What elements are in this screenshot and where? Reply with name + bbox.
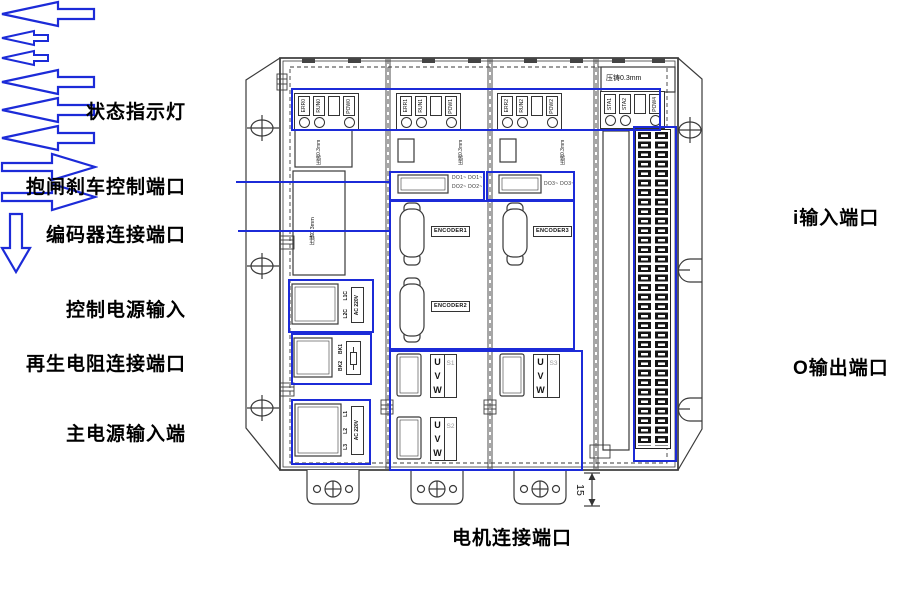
- encoder-label: 编码器连接端口: [46, 220, 186, 247]
- led-strip: RUN1: [415, 96, 427, 116]
- led-label: POW2: [550, 99, 555, 114]
- led-strip: ERR1: [400, 96, 412, 116]
- led-group-2: ERR1 RUN1 POW1: [396, 93, 461, 131]
- led-strip: ERR2: [501, 96, 513, 116]
- led-strip: STA1: [604, 94, 616, 114]
- dimension-value: 15: [574, 480, 586, 500]
- status-label: 状态指示灯: [86, 97, 186, 124]
- led-strip: ERR0: [298, 96, 310, 116]
- led-column: RUN2: [516, 96, 528, 128]
- led-column: RUN0: [313, 96, 325, 128]
- input-port-label: i输入端口: [793, 203, 879, 230]
- led-column: ERR2: [501, 96, 513, 128]
- resistor-box: [346, 341, 361, 375]
- diecast-text-m2: 压铸0.3mm: [459, 127, 464, 165]
- servo-drive-diagram: ERR0 RUN0 POW0 ERR1 RUN1 POW1 ERR2 RUN2 …: [0, 0, 900, 594]
- led-strip: STA2: [619, 94, 631, 114]
- dimension-15: [584, 473, 600, 506]
- socket-id: S2: [444, 418, 456, 460]
- uvw-w: W: [433, 386, 442, 395]
- do-label-m3: DO3~ DO3~: [544, 180, 575, 189]
- led-label: POW1: [449, 99, 454, 114]
- control-power-labels: L1C L2C AC 220V: [344, 287, 364, 323]
- uvw-v: V: [434, 372, 440, 381]
- led-column: ERR0: [298, 96, 310, 128]
- led-label: POW0: [347, 99, 352, 114]
- led-label: POW4: [653, 97, 658, 112]
- led-group-3: ERR2 RUN2 POW2: [497, 93, 562, 131]
- led-column: [328, 96, 340, 128]
- led-indicator: [517, 117, 528, 128]
- led-strip: POW1: [445, 96, 457, 116]
- led-indicator: [401, 117, 412, 128]
- led-indicator: [446, 117, 457, 128]
- uvw-letters: UVW: [431, 355, 444, 397]
- output-port-label: O输出端口: [793, 353, 889, 380]
- led-label: STA1: [608, 98, 613, 110]
- voltage-box: AC 220V: [351, 287, 364, 323]
- do-labels-m2: DO1~ DO1~ DO2~ DO2~: [452, 174, 483, 192]
- led-label: STA2: [623, 98, 628, 110]
- terminal-bk1: BK1: [339, 344, 344, 354]
- led-column: STA1: [604, 94, 616, 126]
- led-label: ERR1: [404, 99, 409, 112]
- uvw-u: U: [537, 358, 544, 367]
- led-indicator: [344, 117, 355, 128]
- uvw-terminal-s1: UVW S1: [430, 354, 457, 398]
- led-column: [531, 96, 543, 128]
- uvw-v: V: [537, 372, 543, 381]
- uvw-letters: UVW: [534, 355, 547, 397]
- socket-id: S1: [444, 355, 456, 397]
- uvw-u: U: [434, 358, 441, 367]
- regen-resistor-labels: BK1 BK2: [339, 341, 361, 375]
- uvw-v: V: [434, 435, 440, 444]
- voltage-label: AC 220V: [355, 420, 360, 440]
- led-indicator: [650, 115, 661, 126]
- encoder1-label: ENCODER1: [431, 226, 470, 237]
- led-indicator: [314, 117, 325, 128]
- uvw-u: U: [434, 421, 441, 430]
- io-terminal-strip: [635, 129, 671, 449]
- led-indicator: [416, 117, 427, 128]
- terminal-l2c: L2C: [344, 309, 349, 318]
- led-column: POW1: [445, 96, 457, 128]
- led-group-4: STA1 STA2 POW4: [600, 91, 665, 129]
- led-column: POW2: [546, 96, 558, 128]
- io-terminal-column-right: [655, 132, 668, 446]
- led-label: RUN0: [317, 99, 322, 113]
- uvw-letters: UVW: [431, 418, 444, 460]
- control-power-label: 控制电源输入: [66, 295, 186, 322]
- led-strip: RUN2: [516, 96, 528, 116]
- led-column: [634, 94, 646, 126]
- encoder2-label: ENCODER2: [431, 301, 470, 312]
- led-strip: POW2: [546, 96, 558, 116]
- uvw-terminal-s3: UVW S3: [533, 354, 560, 398]
- led-label: RUN1: [419, 99, 424, 113]
- diecast-text-m3: 压铸0.3mm: [561, 127, 566, 165]
- led-column: [430, 96, 442, 128]
- led-indicator: [605, 115, 616, 126]
- led-strip: POW0: [343, 96, 355, 116]
- brake-label: 抱闸刹车控制端口: [26, 172, 186, 199]
- led-group-1: ERR0 RUN0 POW0: [294, 93, 359, 131]
- terminal-names: L1 L2 L3: [344, 406, 349, 455]
- led-label: RUN2: [520, 99, 525, 113]
- terminal-l1: L1: [344, 411, 349, 417]
- uvw-w: W: [433, 449, 442, 458]
- led-strip: [634, 94, 646, 114]
- led-strip: POW4: [649, 94, 661, 114]
- voltage-box: AC 220V: [351, 406, 364, 455]
- led-column: POW0: [343, 96, 355, 128]
- resistor-icon: [350, 352, 357, 365]
- regen-resistor-label: 再生电阻连接端口: [26, 349, 186, 376]
- led-label: ERR0: [302, 99, 307, 112]
- voltage-label: AC 220V: [355, 295, 360, 315]
- diecast-text-m4: 压铸0.3mm: [606, 73, 641, 83]
- main-power-label: 主电源输入端: [66, 419, 186, 446]
- led-column: ERR1: [400, 96, 412, 128]
- main-power-labels: L1 L2 L3 AC 220V: [344, 406, 364, 455]
- terminal-l1c: L1C: [344, 291, 349, 300]
- terminal-l2: L2: [344, 428, 349, 434]
- brake-leader-line: [236, 181, 390, 183]
- do-label-line1: DO1~ DO1~: [452, 174, 483, 183]
- led-label: ERR2: [505, 99, 510, 112]
- terminal-bk2: BK2: [339, 361, 344, 371]
- io-terminal-column-left: [638, 132, 651, 446]
- led-strip: RUN0: [313, 96, 325, 116]
- bottom-tabs: [307, 470, 566, 504]
- led-indicator: [299, 117, 310, 128]
- led-indicator: [547, 117, 558, 128]
- diecast-text-2: 压铸0.3mm: [311, 200, 317, 245]
- led-indicator: [502, 117, 513, 128]
- uvw-terminal-s2: UVW S2: [430, 417, 457, 461]
- diecast-text-1: 压铸0.3mm: [317, 133, 322, 165]
- uvw-w: W: [536, 386, 545, 395]
- do-label-line2: DO2~ DO2~: [452, 183, 483, 192]
- led-column: STA2: [619, 94, 631, 126]
- led-strip: [328, 96, 340, 116]
- terminal-names: BK1 BK2: [339, 341, 344, 375]
- terminal-names: L1C L2C: [344, 287, 349, 323]
- motor-port-label: 电机连接端口: [452, 523, 572, 550]
- encoder3-label: ENCODER3: [533, 226, 572, 237]
- led-column: RUN1: [415, 96, 427, 128]
- led-strip: [430, 96, 442, 116]
- socket-id: S3: [547, 355, 559, 397]
- led-indicator: [620, 115, 631, 126]
- encoder-leader-line: [238, 230, 390, 232]
- led-column: POW4: [649, 94, 661, 126]
- led-strip: [531, 96, 543, 116]
- terminal-l3: L3: [344, 444, 349, 450]
